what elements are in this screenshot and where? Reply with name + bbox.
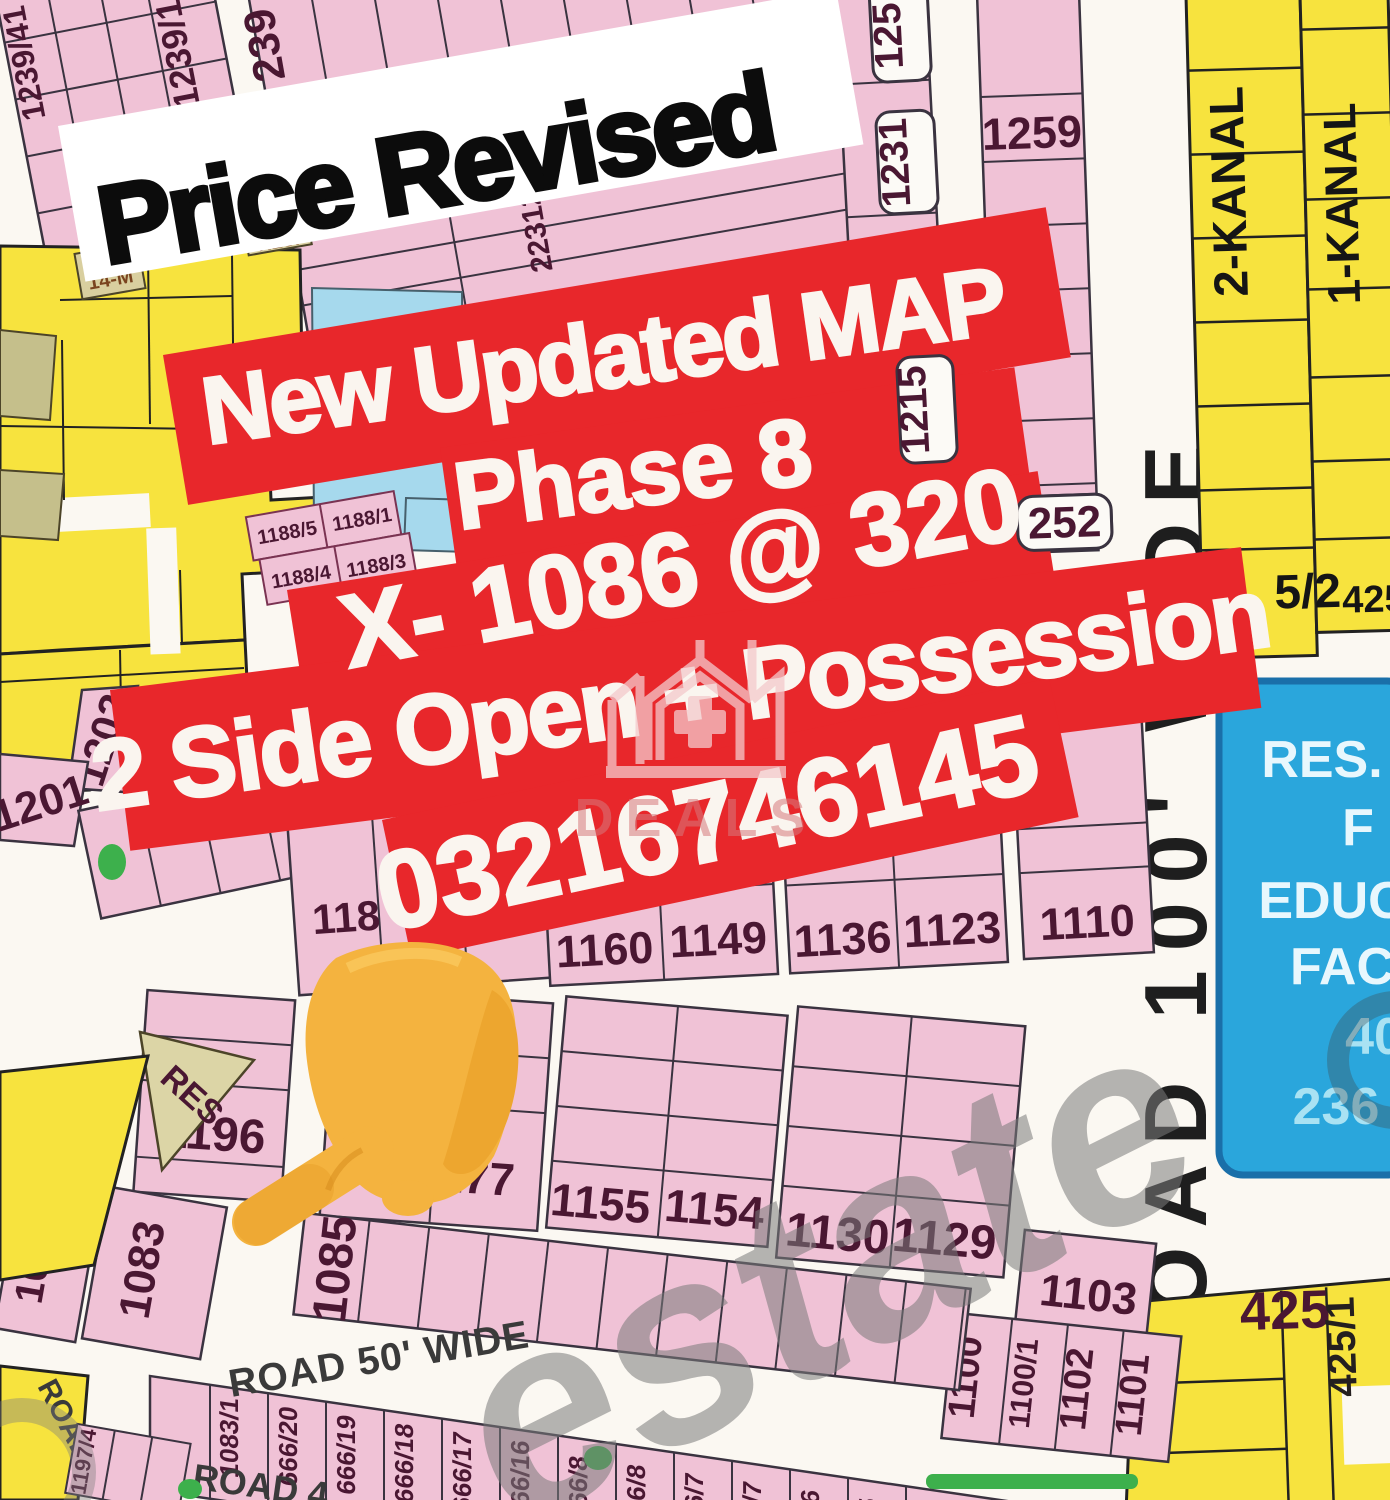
svg-text:DEALS: DEALS — [574, 788, 817, 848]
svg-text:2-KANAL: 2-KANAL — [1200, 86, 1258, 298]
svg-text:5/2: 5/2 — [1274, 565, 1342, 620]
svg-text:666/18: 666/18 — [389, 1421, 419, 1500]
svg-text:F: F — [1342, 799, 1374, 857]
svg-text:425: 425 — [1342, 578, 1390, 622]
svg-text:118: 118 — [311, 891, 382, 943]
svg-text:425/1: 425/1 — [1318, 1296, 1365, 1398]
svg-text:1160: 1160 — [554, 921, 654, 977]
svg-text:RES.: RES. — [1261, 731, 1382, 789]
svg-text:EDUC: EDUC — [1258, 872, 1390, 930]
svg-text:1149: 1149 — [668, 911, 768, 967]
svg-text:1231: 1231 — [871, 117, 920, 208]
svg-text:1136: 1136 — [792, 911, 892, 967]
svg-text:252: 252 — [1027, 497, 1102, 549]
svg-text:425: 425 — [1239, 1279, 1331, 1342]
svg-text:1102: 1102 — [1052, 1346, 1102, 1432]
svg-text:1101: 1101 — [1108, 1352, 1158, 1438]
svg-text:1110: 1110 — [1038, 894, 1136, 950]
svg-text:1-KANAL: 1-KANAL — [1313, 102, 1370, 305]
svg-text:1215: 1215 — [890, 364, 939, 455]
svg-text:125: 125 — [865, 1, 912, 70]
svg-text:1123: 1123 — [902, 901, 1002, 957]
svg-text:1259: 1259 — [981, 105, 1083, 159]
svg-text:666/19: 666/19 — [331, 1413, 361, 1497]
svg-text:FAC: FAC — [1290, 938, 1390, 996]
